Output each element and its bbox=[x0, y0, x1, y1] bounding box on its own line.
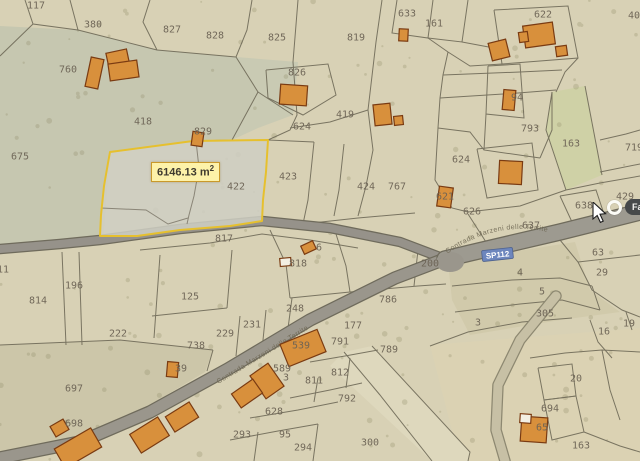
parcel-number-label: 675 bbox=[11, 152, 29, 163]
parcel-number-label: 767 bbox=[388, 182, 406, 193]
parcel-number-label: 3 bbox=[475, 318, 481, 329]
parcel-number-label: 16 bbox=[598, 327, 610, 338]
parcel-number-label: 624 bbox=[452, 155, 470, 166]
building-footprint bbox=[520, 414, 532, 424]
building-footprint bbox=[373, 103, 392, 126]
parcel-number-label: 697 bbox=[65, 384, 83, 395]
map-viewport[interactable]: Contrada Marzeni delle TerriteContrada M… bbox=[0, 0, 640, 461]
parcel-number-label: 423 bbox=[279, 172, 297, 183]
parcel-number-label: 125 bbox=[181, 292, 199, 303]
partial-action-button[interactable]: Fa bbox=[607, 199, 640, 215]
parcel-number-label: 622 bbox=[534, 10, 552, 21]
parcel-number-label: 539 bbox=[292, 341, 310, 352]
road-intersection bbox=[436, 252, 464, 272]
building-footprint bbox=[399, 29, 409, 41]
parcel-number-label: 424 bbox=[357, 182, 375, 193]
building-footprint bbox=[394, 116, 404, 126]
parcel-number-label: 419 bbox=[336, 110, 354, 121]
parcel-number-label: 95 bbox=[279, 430, 291, 441]
parcel-number-label: 621 bbox=[436, 192, 454, 203]
area-measurement-label: 6146.13 m2 bbox=[151, 162, 220, 182]
parcel-number-label: 793 bbox=[521, 124, 539, 135]
parcel-number-label: 161 bbox=[425, 19, 443, 30]
parcel-number-label: 405 bbox=[628, 11, 640, 22]
parcel-number-label: 791 bbox=[331, 337, 349, 348]
parcel-number-label: 380 bbox=[84, 20, 102, 31]
parcel-number-label: 818 bbox=[289, 259, 307, 270]
parcel-number-label: 789 bbox=[380, 345, 398, 356]
parcel-number-label: 792 bbox=[338, 394, 356, 405]
action-button-label[interactable]: Fa bbox=[625, 199, 640, 215]
area-value: 6146.13 m bbox=[157, 167, 210, 179]
parcel-number-label: 418 bbox=[134, 117, 152, 128]
parcel-number-label: 638 bbox=[575, 201, 593, 212]
parcel-number-label: 65 bbox=[536, 423, 548, 434]
parcel-number-label: 63 bbox=[592, 248, 604, 259]
parcel-number-label: 786 bbox=[379, 295, 397, 306]
parcel-number-label: 828 bbox=[206, 31, 224, 42]
parcel-number-label: 196 bbox=[65, 281, 83, 292]
parcel-number-label: 117 bbox=[27, 1, 45, 12]
status-circle-icon bbox=[607, 200, 622, 215]
parcel-number-label: 637 bbox=[522, 221, 540, 232]
parcel-number-label: 628 bbox=[265, 407, 283, 418]
parcel-number-label: 760 bbox=[59, 65, 77, 76]
parcel-number-label: 738 bbox=[187, 341, 205, 352]
mouse-cursor-icon bbox=[592, 202, 608, 231]
parcel-number-label: 422 bbox=[227, 182, 245, 193]
parcel-number-label: 4 bbox=[517, 268, 523, 279]
parcel-number-label: 812 bbox=[331, 368, 349, 379]
building-footprint bbox=[555, 45, 567, 56]
parcel-number-label: 231 bbox=[243, 320, 261, 331]
building-footprint bbox=[518, 31, 528, 42]
parcel-number-label: 6 bbox=[316, 243, 322, 254]
parcel-number-label: 819 bbox=[347, 33, 365, 44]
parcel-number-label: 817 bbox=[215, 234, 233, 245]
parcel-number-label: 29 bbox=[596, 268, 608, 279]
parcel-number-label: 177 bbox=[344, 321, 362, 332]
parcel-number-label: 719 bbox=[625, 143, 640, 154]
parcel-number-label: 5 bbox=[539, 287, 545, 298]
parcel-number-label: 222 bbox=[109, 329, 127, 340]
parcel-number-label: 300 bbox=[361, 438, 379, 449]
parcel-number-label: 624 bbox=[293, 122, 311, 133]
building-footprint bbox=[279, 84, 307, 106]
parcel-number-label: 811 bbox=[305, 376, 323, 387]
parcel-number-label: 163 bbox=[572, 441, 590, 452]
parcel-number-label: 294 bbox=[294, 443, 312, 454]
cadastral-map[interactable]: Contrada Marzeni delle TerriteContrada M… bbox=[0, 0, 640, 461]
parcel-number-label: 626 bbox=[463, 207, 481, 218]
parcel-number-label: 826 bbox=[288, 68, 306, 79]
parcel-number-label: 293 bbox=[233, 430, 251, 441]
parcel-number-label: 811 bbox=[0, 265, 9, 276]
parcel-number-label: 20 bbox=[570, 374, 582, 385]
parcel-number-label: 229 bbox=[216, 329, 234, 340]
parcel-number-label: 829 bbox=[194, 127, 212, 138]
parcel-number-label: 825 bbox=[268, 33, 286, 44]
parcel-number-label: 94 bbox=[511, 93, 523, 104]
parcel-number-label: 827 bbox=[163, 25, 181, 36]
building-footprint bbox=[108, 60, 139, 81]
parcel-number-label: 39 bbox=[175, 364, 187, 375]
parcel-number-label: 19 bbox=[623, 319, 635, 330]
parcel-number-label: 694 bbox=[541, 404, 559, 415]
parcel-number-label: 3 bbox=[283, 373, 289, 384]
parcel-number-label: 633 bbox=[398, 9, 416, 20]
parcel-number-label: 163 bbox=[562, 139, 580, 150]
building-footprint bbox=[488, 39, 510, 61]
parcel-number-label: 698 bbox=[65, 419, 83, 430]
parcel-number-label: 305 bbox=[536, 309, 554, 320]
parcel-number-label: 814 bbox=[29, 296, 47, 307]
area-exponent: 2 bbox=[210, 164, 214, 173]
parcel-number-label: 248 bbox=[286, 304, 304, 315]
parcel-number-label: 200 bbox=[421, 259, 439, 270]
building-footprint bbox=[498, 160, 522, 184]
